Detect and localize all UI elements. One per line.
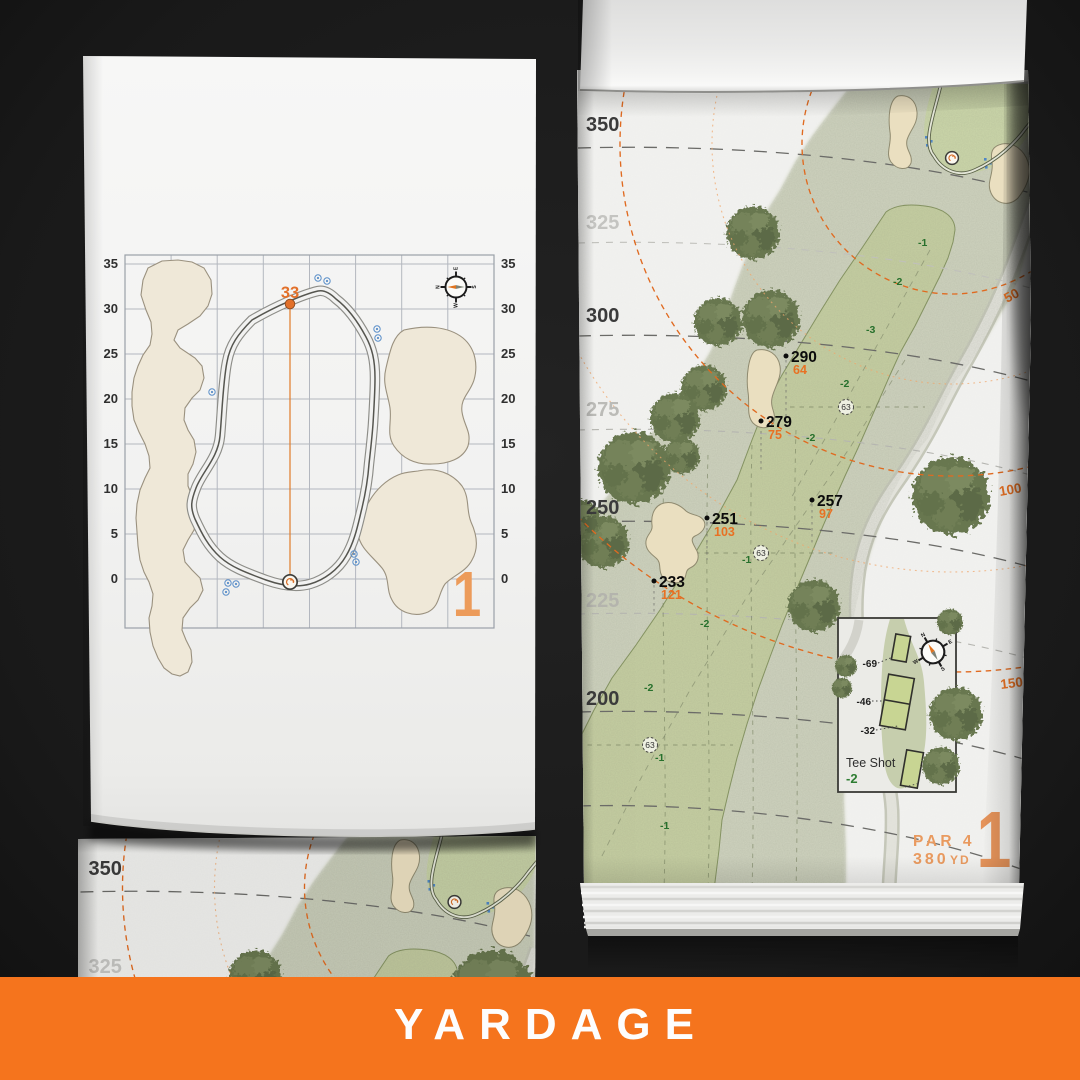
svg-text:15: 15	[104, 436, 118, 451]
svg-text:0: 0	[501, 571, 508, 586]
svg-text:1: 1	[453, 560, 481, 631]
svg-text:30: 30	[501, 301, 515, 316]
svg-text:35: 35	[104, 256, 118, 271]
svg-text:5: 5	[501, 526, 508, 541]
svg-text:5: 5	[111, 526, 118, 541]
svg-text:10: 10	[501, 481, 515, 496]
svg-text:30: 30	[104, 301, 118, 316]
svg-text:25: 25	[501, 346, 515, 361]
svg-text:15: 15	[501, 436, 515, 451]
svg-text:YARDAGE: YARDAGE	[394, 1000, 708, 1049]
svg-text:0: 0	[111, 571, 118, 586]
svg-text:20: 20	[104, 391, 118, 406]
svg-text:20: 20	[501, 391, 515, 406]
svg-text:10: 10	[104, 481, 118, 496]
svg-text:35: 35	[501, 256, 515, 271]
svg-text:25: 25	[104, 346, 118, 361]
